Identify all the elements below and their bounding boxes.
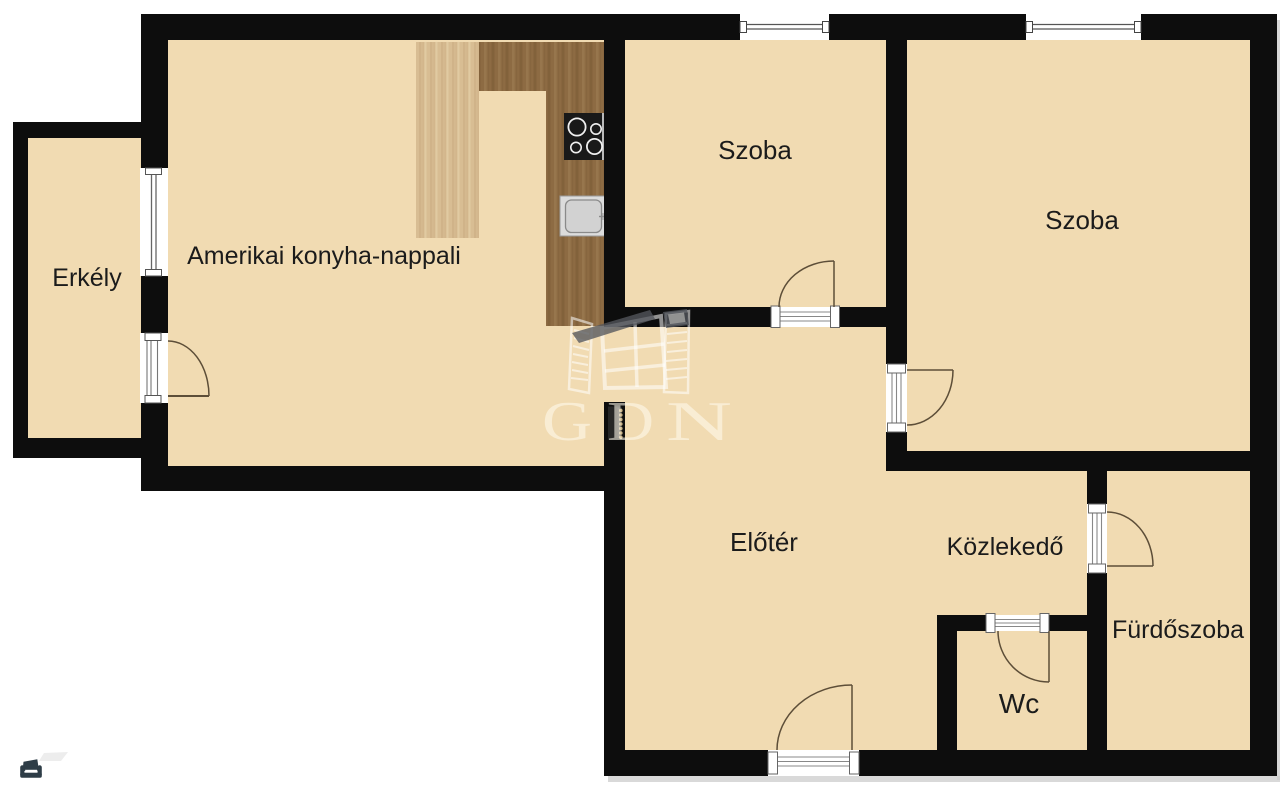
svg-text:D: D	[607, 391, 654, 453]
svg-text:Wc: Wc	[999, 688, 1039, 719]
svg-text:Amerikai konyha-nappali: Amerikai konyha-nappali	[187, 242, 461, 270]
svg-text:Előtér: Előtér	[730, 527, 798, 557]
svg-text:Szoba: Szoba	[718, 135, 792, 165]
svg-text:Fürdőszoba: Fürdőszoba	[1112, 616, 1244, 644]
svg-text:Erkély: Erkély	[52, 264, 122, 292]
svg-text:Közlekedő: Közlekedő	[947, 533, 1064, 561]
svg-text:N: N	[666, 391, 732, 453]
svg-text:Szoba: Szoba	[1045, 205, 1119, 235]
svg-text:G: G	[542, 391, 592, 453]
